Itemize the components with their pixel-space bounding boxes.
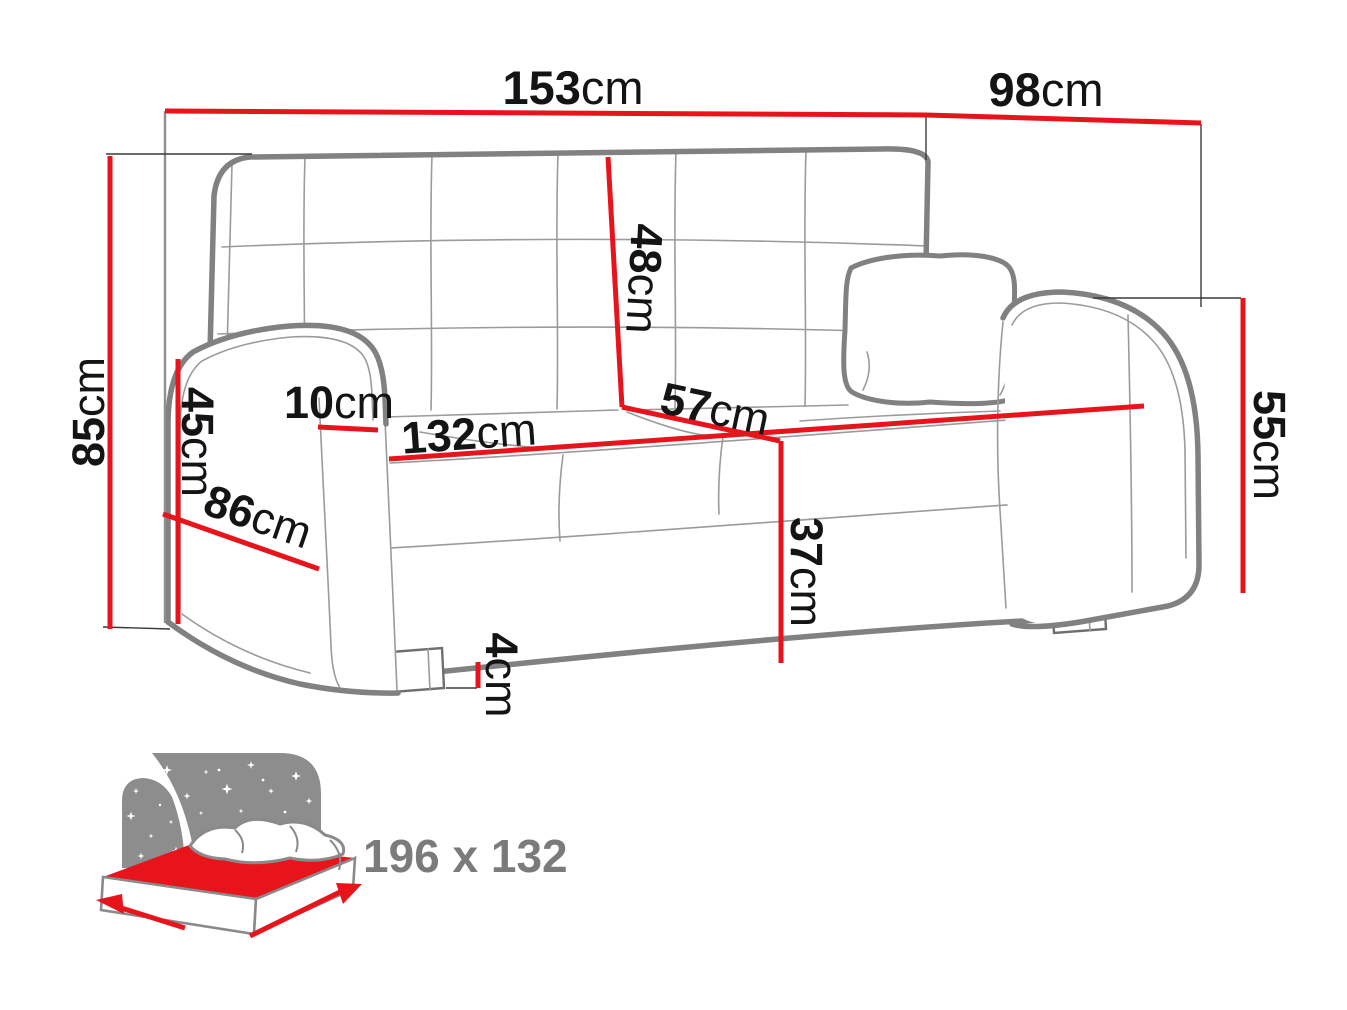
label-seat-height: 37cm [781,517,832,627]
sofa-dimension-diagram: 153cm 98cm 85cm 45cm 10cm 86cm 132cm 48c… [0,0,1347,1010]
bed-icon: 196 x 132 [96,753,568,936]
label-backrest-height: 48cm [616,223,673,336]
label-overall-depth: 98cm [989,63,1104,116]
label-armrest-width: 10cm [284,377,394,428]
sofa-armrest-right [998,292,1199,627]
sofa-leg-left [391,648,444,692]
label-side-height: 55cm [1244,390,1295,500]
label-overall-width: 153cm [502,61,643,114]
dimension-line-overall-depth [926,115,1201,123]
sleeping-area-label: 196 x 132 [363,830,568,882]
label-overall-height: 85cm [63,357,114,467]
label-leg-height: 4cm [476,632,527,717]
diagram-canvas: 153cm 98cm 85cm 45cm 10cm 86cm 132cm 48c… [0,0,1347,1010]
sofa-pillow [844,255,1020,404]
label-seat-width: 132cm [400,403,538,463]
tick-height-bottom [103,627,170,629]
